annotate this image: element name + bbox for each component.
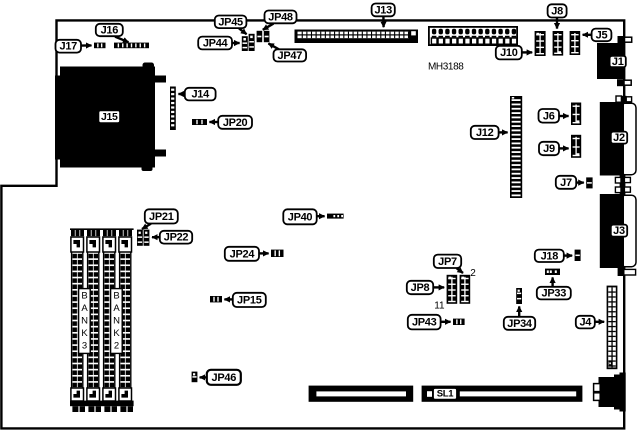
- svg-text:JP40: JP40: [288, 211, 313, 223]
- svg-text:JP47: JP47: [278, 50, 303, 62]
- svg-text:JP24: JP24: [230, 248, 256, 260]
- svg-text:JP7: JP7: [438, 256, 457, 268]
- svg-text:J13: J13: [374, 4, 392, 16]
- svg-text:J10: J10: [500, 47, 518, 59]
- svg-text:J15: J15: [101, 111, 118, 123]
- svg-text:JP34: JP34: [507, 318, 533, 330]
- svg-text:J14: J14: [191, 89, 210, 101]
- svg-text:A: A: [113, 303, 120, 314]
- svg-text:2: 2: [470, 268, 476, 279]
- svg-text:A: A: [81, 303, 88, 314]
- svg-text:J4: J4: [579, 317, 592, 329]
- svg-text:J12: J12: [476, 127, 494, 139]
- svg-text:3: 3: [82, 341, 87, 352]
- svg-text:J7: J7: [560, 177, 572, 189]
- svg-text:J2: J2: [613, 132, 625, 144]
- svg-text:JP33: JP33: [542, 288, 567, 300]
- svg-text:2: 2: [114, 341, 119, 352]
- svg-text:11: 11: [434, 301, 445, 312]
- svg-text:K: K: [81, 328, 88, 339]
- svg-text:JP22: JP22: [164, 232, 189, 244]
- svg-text:J5: J5: [596, 29, 608, 41]
- svg-text:J16: J16: [101, 24, 119, 36]
- svg-text:JP20: JP20: [223, 117, 248, 129]
- svg-text:MH3188: MH3188: [428, 62, 464, 73]
- svg-text:B: B: [81, 291, 87, 302]
- svg-text:J17: J17: [60, 41, 78, 53]
- svg-text:JP43: JP43: [412, 317, 437, 329]
- svg-text:JP44: JP44: [203, 37, 229, 49]
- svg-text:JP48: JP48: [268, 11, 293, 23]
- svg-text:JP8: JP8: [411, 282, 430, 294]
- svg-text:K: K: [113, 328, 120, 339]
- svg-text:B: B: [113, 291, 119, 302]
- svg-text:J3: J3: [613, 225, 625, 237]
- svg-text:JP46: JP46: [212, 372, 237, 384]
- svg-text:J8: J8: [551, 5, 563, 17]
- svg-text:J1: J1: [612, 56, 624, 68]
- svg-text:J6: J6: [543, 110, 555, 122]
- svg-text:J18: J18: [541, 250, 559, 262]
- svg-text:JP15: JP15: [237, 294, 262, 306]
- svg-text:JP21: JP21: [149, 211, 174, 223]
- svg-text:JP45: JP45: [218, 16, 243, 28]
- svg-text:J9: J9: [543, 143, 555, 155]
- svg-text:N: N: [81, 316, 88, 327]
- svg-text:N: N: [113, 316, 120, 327]
- svg-text:SL1: SL1: [437, 389, 455, 400]
